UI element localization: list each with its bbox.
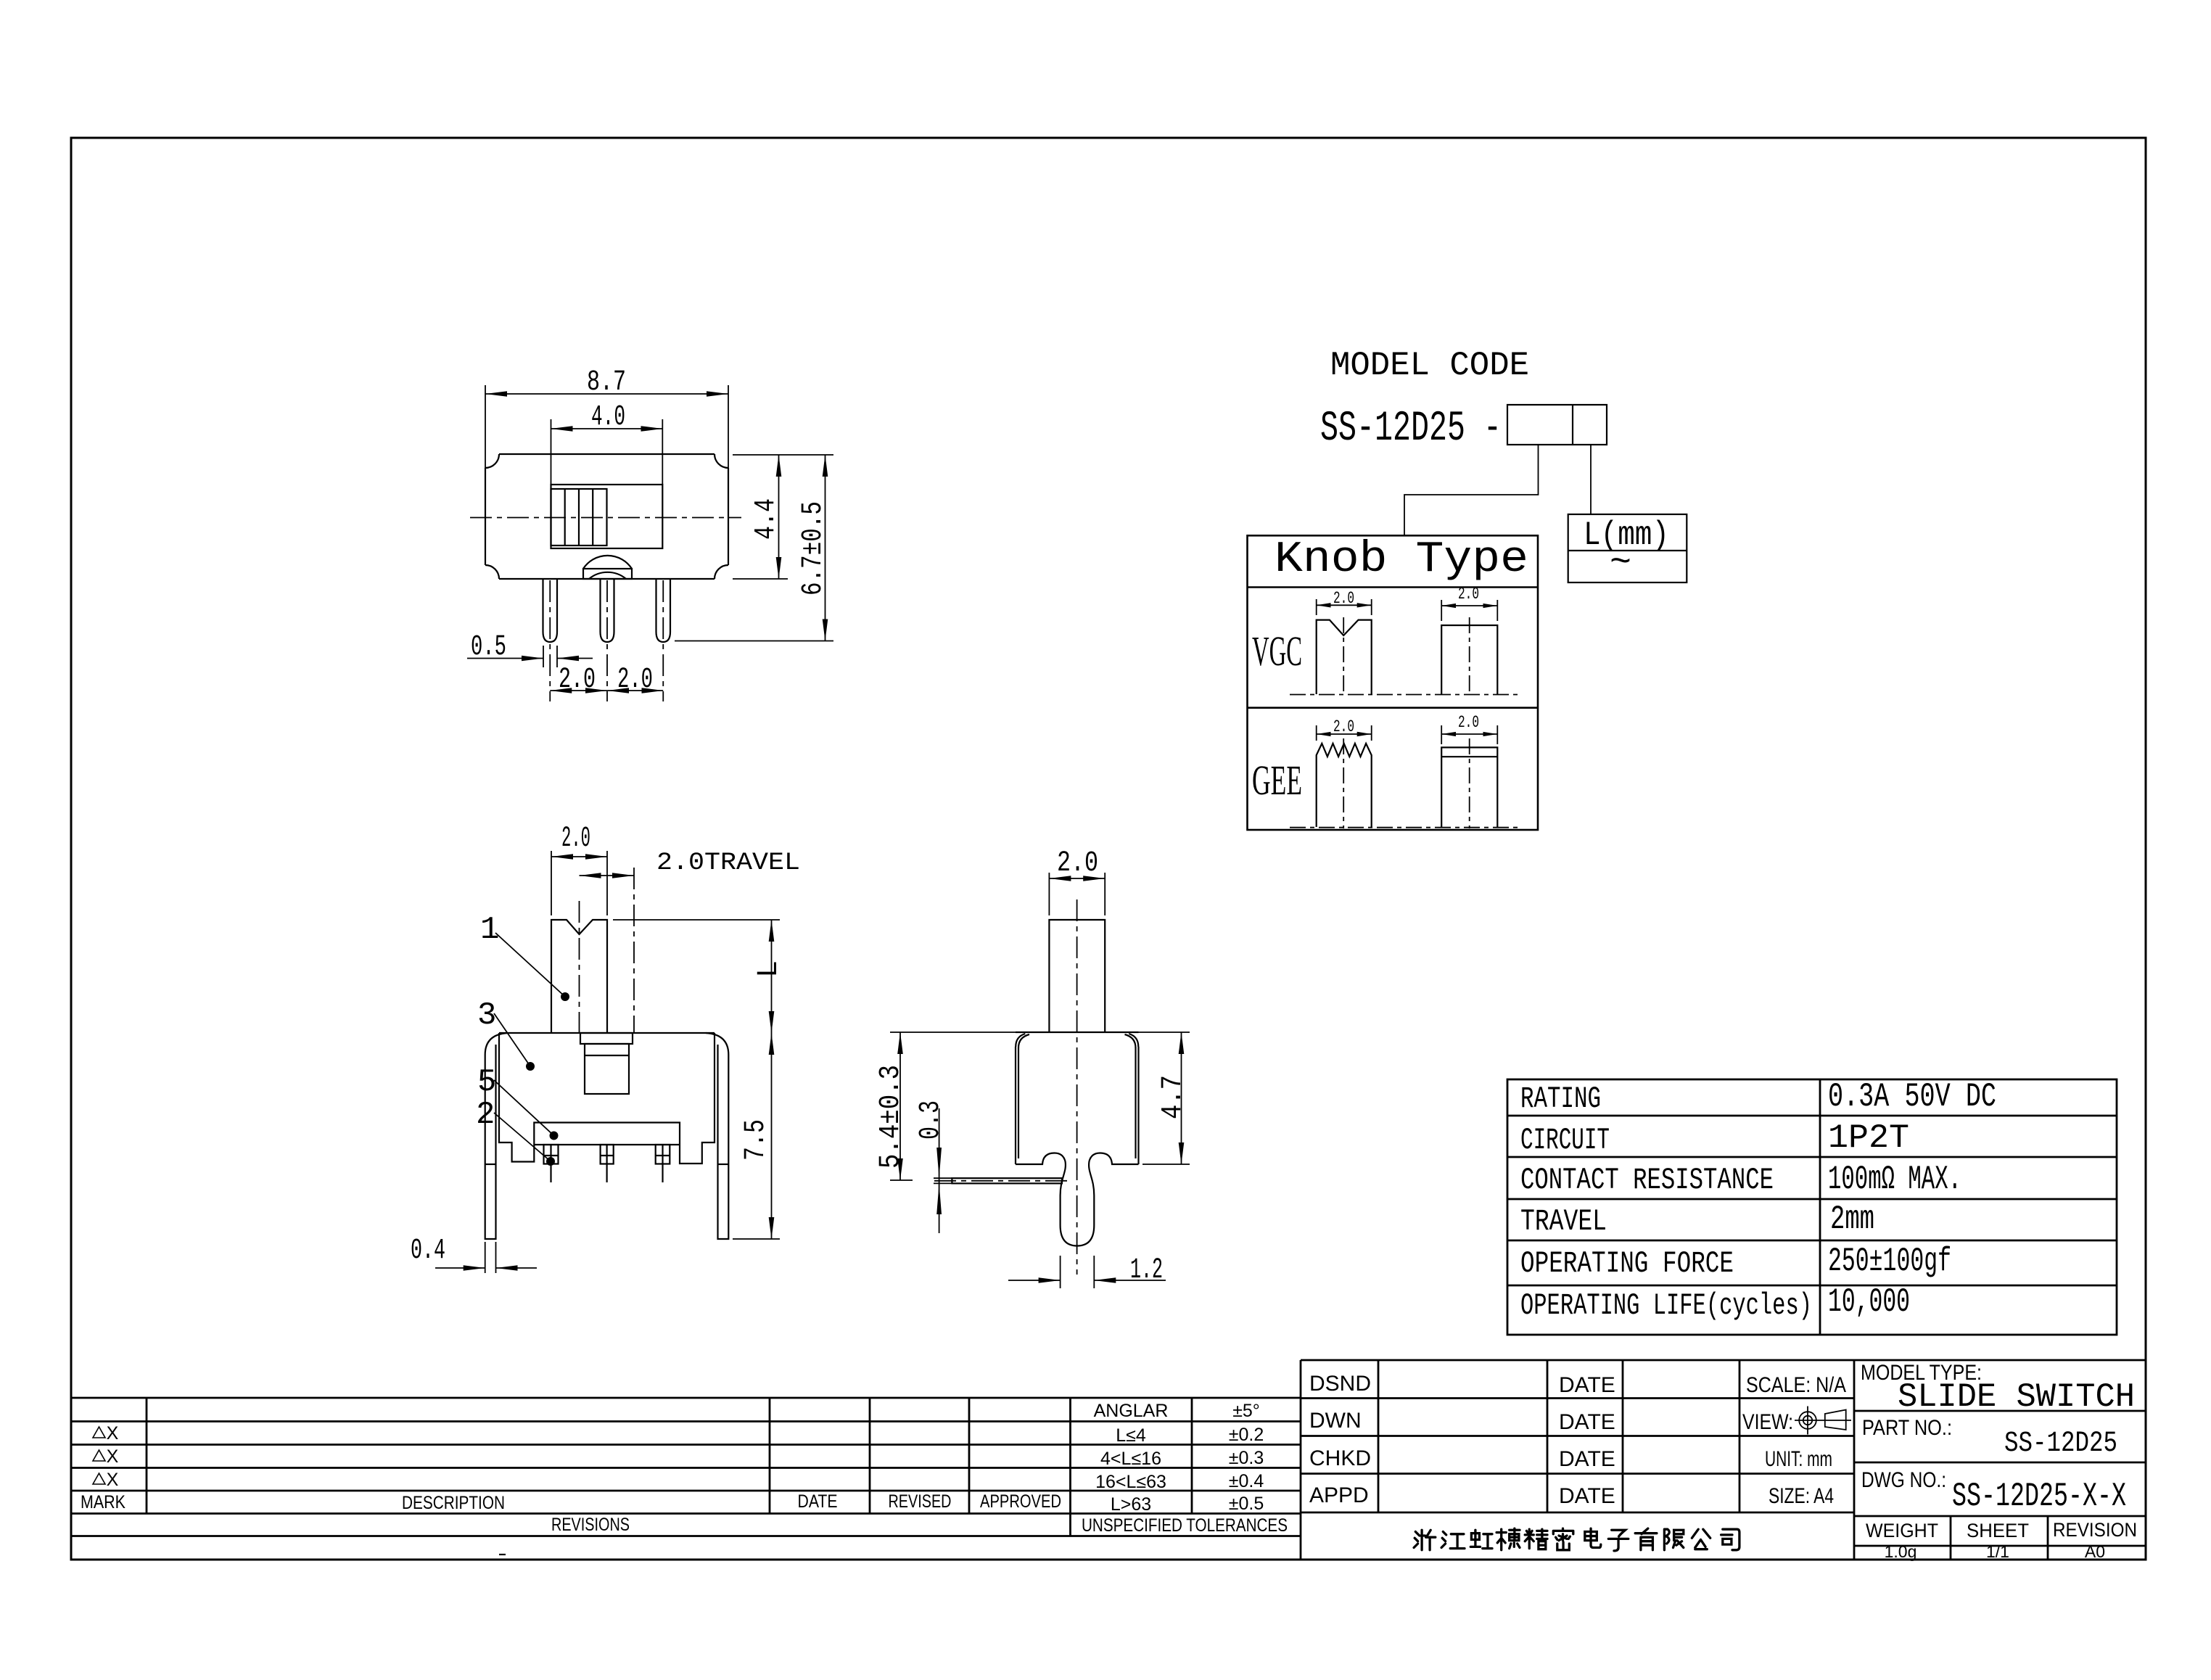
- svg-text:SS-12D25-X-X: SS-12D25-X-X: [1952, 1478, 2126, 1515]
- svg-text:250±100gf: 250±100gf: [1828, 1243, 1951, 1280]
- svg-text:2.0: 2.0: [561, 823, 590, 855]
- svg-text:~: ~: [1610, 543, 1631, 584]
- svg-text:4.4: 4.4: [750, 498, 783, 540]
- svg-text:SCALE: N/A: SCALE: N/A: [1746, 1373, 1846, 1397]
- svg-text:X: X: [107, 1470, 119, 1490]
- svg-text:4.7: 4.7: [1157, 1075, 1190, 1119]
- svg-text:A0: A0: [2085, 1542, 2105, 1561]
- svg-text:CONTACT RESISTANCE: CONTACT RESISTANCE: [1520, 1163, 1774, 1198]
- svg-text:GEE: GEE: [1252, 757, 1302, 804]
- svg-text:X: X: [107, 1423, 119, 1444]
- svg-text:1.0g: 1.0g: [1885, 1542, 1917, 1561]
- svg-text:±0.2: ±0.2: [1229, 1425, 1264, 1445]
- svg-text:UNIT: mm: UNIT: mm: [1765, 1447, 1832, 1471]
- svg-text:2.0: 2.0: [617, 664, 653, 696]
- svg-text:±0.3: ±0.3: [1229, 1448, 1264, 1468]
- svg-text:2.0: 2.0: [1333, 589, 1354, 608]
- svg-text:2.0: 2.0: [1458, 585, 1479, 604]
- svg-text:1: 1: [480, 912, 499, 948]
- svg-text:PART NO.:: PART NO.:: [1862, 1416, 1952, 1440]
- svg-text:SS-12D25: SS-12D25: [2004, 1428, 2117, 1460]
- svg-text:SS-12D25 -: SS-12D25 -: [1320, 405, 1502, 453]
- svg-text:VIEW:: VIEW:: [1742, 1410, 1793, 1434]
- svg-text:10,000: 10,000: [1828, 1283, 1910, 1321]
- svg-text:SHEET: SHEET: [1967, 1520, 2029, 1541]
- svg-text:7.5: 7.5: [740, 1119, 773, 1161]
- svg-text:APPROVED: APPROVED: [980, 1491, 1061, 1512]
- svg-text:2.0: 2.0: [559, 664, 596, 696]
- svg-text:5.4±0.3: 5.4±0.3: [875, 1065, 907, 1169]
- svg-text:100mΩ MAX.: 100mΩ MAX.: [1828, 1161, 1961, 1198]
- svg-text:±5°: ±5°: [1232, 1401, 1260, 1421]
- svg-text:6.7±0.5: 6.7±0.5: [797, 501, 830, 596]
- svg-text:16<L≤63: 16<L≤63: [1095, 1472, 1166, 1492]
- svg-text:0.3A 50V DC: 0.3A 50V DC: [1828, 1078, 1996, 1116]
- svg-text:0.3: 0.3: [915, 1100, 947, 1140]
- svg-text:L≤4: L≤4: [1116, 1425, 1146, 1446]
- svg-text:DATE: DATE: [1559, 1484, 1615, 1508]
- svg-text:±0.5: ±0.5: [1229, 1494, 1264, 1514]
- svg-text:DATE: DATE: [1559, 1410, 1615, 1434]
- svg-text:1/1: 1/1: [1986, 1542, 2009, 1561]
- svg-text:DATE: DATE: [798, 1491, 838, 1512]
- svg-text:CHKD: CHKD: [1309, 1446, 1371, 1470]
- svg-text:8.7: 8.7: [587, 366, 626, 399]
- svg-text:2.0: 2.0: [1333, 717, 1354, 736]
- svg-text:SIZE: A4: SIZE: A4: [1769, 1484, 1834, 1508]
- svg-text:MARK: MARK: [81, 1492, 125, 1512]
- svg-text:2.0: 2.0: [1057, 847, 1098, 880]
- svg-text:REVISIONS: REVISIONS: [551, 1515, 630, 1535]
- svg-text:MODEL CODE: MODEL CODE: [1330, 347, 1529, 384]
- svg-text:TRAVEL: TRAVEL: [1520, 1204, 1607, 1239]
- svg-text:2: 2: [476, 1097, 495, 1133]
- svg-text:5: 5: [477, 1064, 496, 1100]
- svg-text:4.0: 4.0: [591, 401, 625, 434]
- svg-text:UNSPECIFIED TOLERANCES: UNSPECIFIED TOLERANCES: [1082, 1515, 1288, 1536]
- svg-text:2.0: 2.0: [1458, 713, 1479, 732]
- svg-text:CIRCUIT: CIRCUIT: [1520, 1123, 1610, 1158]
- svg-text:RATING: RATING: [1520, 1082, 1601, 1116]
- svg-text:L: L: [753, 960, 786, 978]
- svg-text:DATE: DATE: [1559, 1447, 1615, 1471]
- svg-text:1P2T: 1P2T: [1828, 1119, 1909, 1157]
- svg-text:VGC: VGC: [1252, 627, 1302, 675]
- svg-text:DATE: DATE: [1559, 1373, 1615, 1397]
- svg-text:±0.4: ±0.4: [1229, 1471, 1264, 1491]
- svg-text:1.2: 1.2: [1130, 1254, 1163, 1287]
- svg-text:WEIGHT: WEIGHT: [1866, 1520, 1938, 1541]
- svg-text:2mm: 2mm: [1830, 1201, 1874, 1238]
- svg-text:DWN: DWN: [1309, 1409, 1362, 1433]
- svg-text:L>63: L>63: [1111, 1494, 1151, 1515]
- svg-text:DESCRIPTION: DESCRIPTION: [402, 1493, 505, 1513]
- svg-text:REVISED: REVISED: [889, 1491, 952, 1512]
- svg-text:0.4: 0.4: [411, 1235, 445, 1267]
- svg-text:DSND: DSND: [1309, 1372, 1371, 1396]
- svg-text:APPD: APPD: [1309, 1483, 1369, 1507]
- svg-text:OPERATING FORCE: OPERATING FORCE: [1520, 1246, 1734, 1281]
- svg-text:4<L≤16: 4<L≤16: [1100, 1449, 1161, 1469]
- svg-text:SLIDE SWITCH: SLIDE SWITCH: [1898, 1378, 2135, 1416]
- svg-text:ANGLAR: ANGLAR: [1094, 1401, 1169, 1421]
- svg-text:OPERATING LIFE(cycles): OPERATING LIFE(cycles): [1520, 1288, 1812, 1323]
- svg-text:3: 3: [477, 997, 496, 1034]
- svg-text:0.5: 0.5: [471, 631, 506, 664]
- svg-text:DWG NO.:: DWG NO.:: [1861, 1468, 1946, 1492]
- svg-text:2.0TRAVEL: 2.0TRAVEL: [656, 849, 800, 877]
- svg-text:Knob Type: Knob Type: [1275, 535, 1528, 585]
- svg-text:X: X: [107, 1446, 119, 1467]
- svg-text:REVISION: REVISION: [2053, 1519, 2137, 1541]
